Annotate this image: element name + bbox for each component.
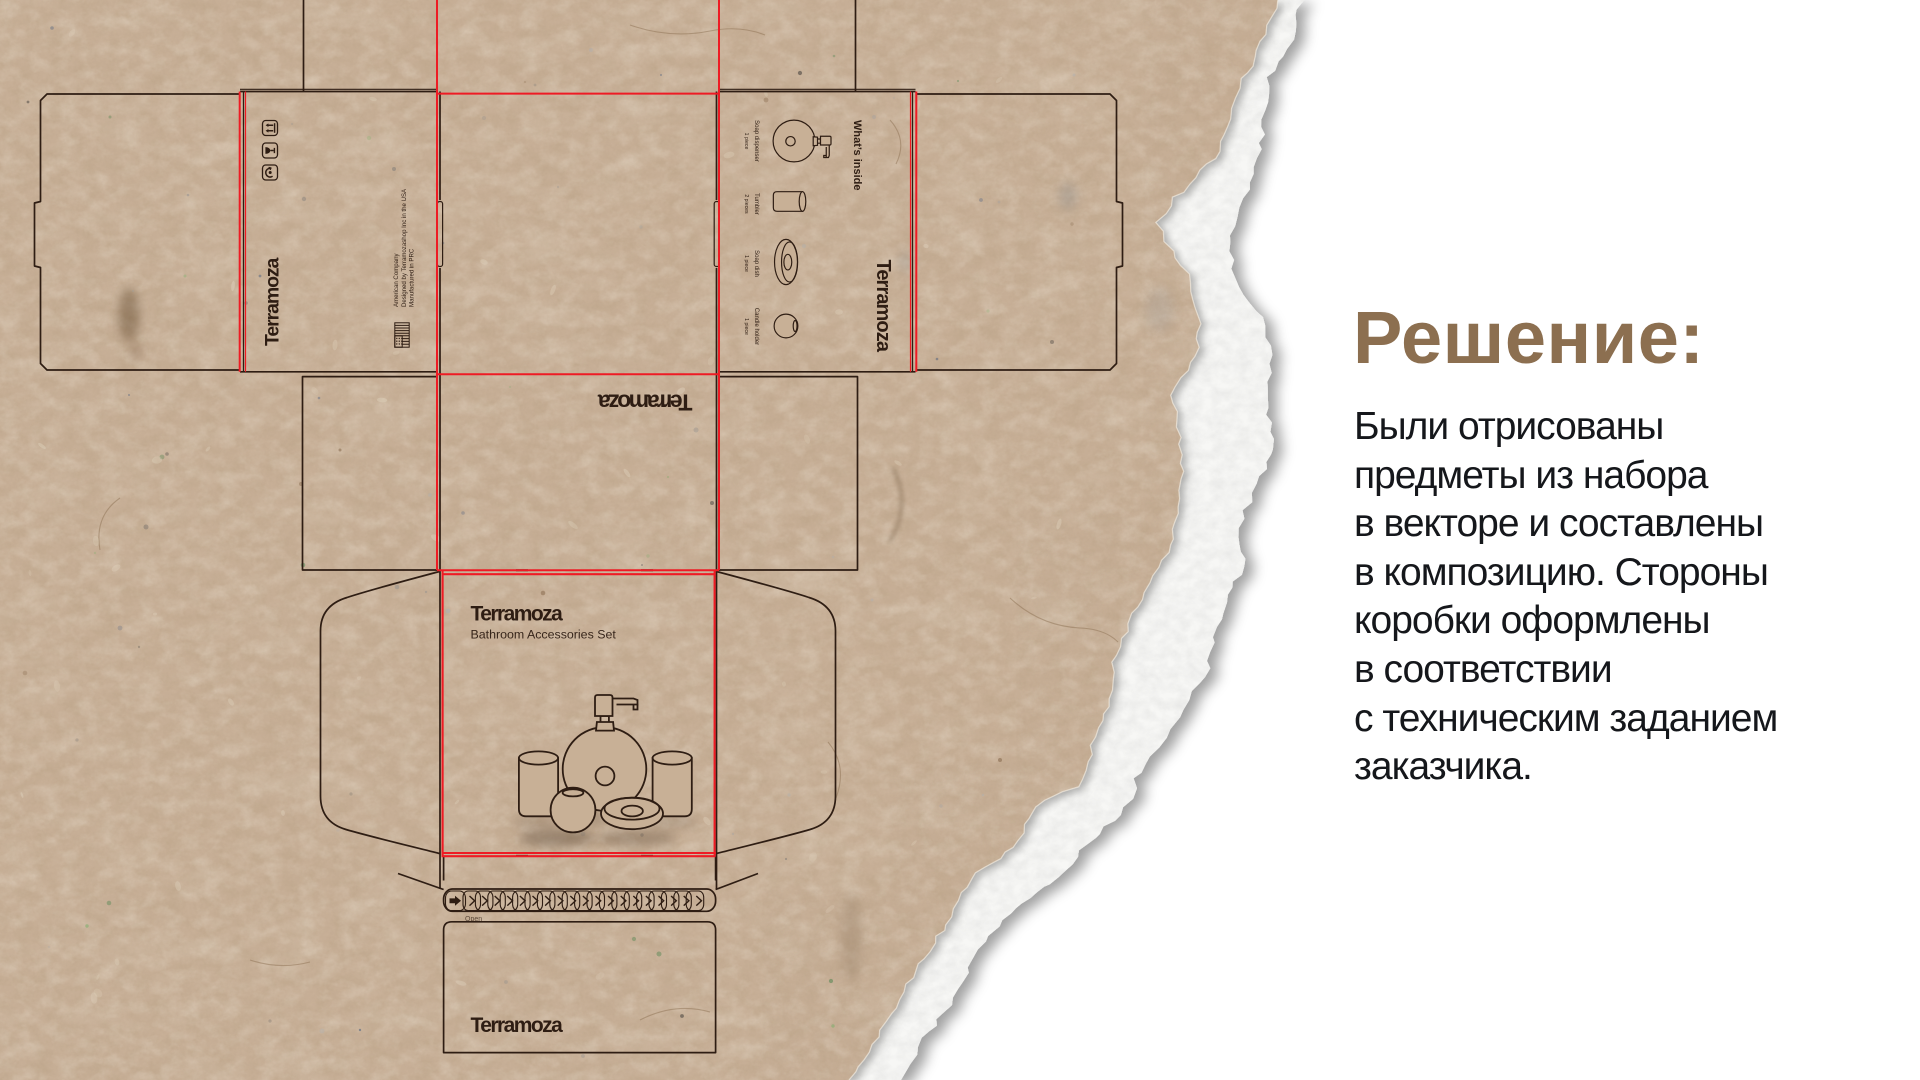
svg-text:Tumbler: Tumbler [753, 193, 759, 215]
svg-text:American Company: American Company [393, 253, 400, 307]
svg-text:What’s inside: What’s inside [851, 120, 863, 191]
svg-text:1 piece: 1 piece [743, 318, 749, 335]
svg-text:Soap dispenser: Soap dispenser [753, 120, 759, 162]
svg-text:Manufactured in PRC: Manufactured in PRC [409, 248, 416, 307]
svg-text:Terramoza: Terramoza [262, 257, 284, 346]
svg-text:1 piece: 1 piece [743, 255, 749, 272]
svg-text:Terramoza: Terramoza [598, 390, 693, 416]
svg-text:Terramoza: Terramoza [872, 260, 894, 353]
svg-text:Bathroom Accessories Set: Bathroom Accessories Set [471, 628, 617, 642]
svg-text:Designed by Terramozashop Inc: Designed by Terramozashop Inc in the USA [401, 188, 408, 307]
svg-text:Soap dish: Soap dish [753, 250, 759, 277]
svg-text:2 pieces: 2 pieces [743, 194, 749, 214]
svg-text:Terramoza: Terramoza [471, 603, 564, 626]
svg-text:Terramoza: Terramoza [471, 1014, 564, 1037]
svg-text:Open: Open [465, 916, 482, 923]
svg-text:1 piece: 1 piece [743, 133, 749, 150]
svg-text:Candle holder: Candle holder [753, 308, 759, 345]
